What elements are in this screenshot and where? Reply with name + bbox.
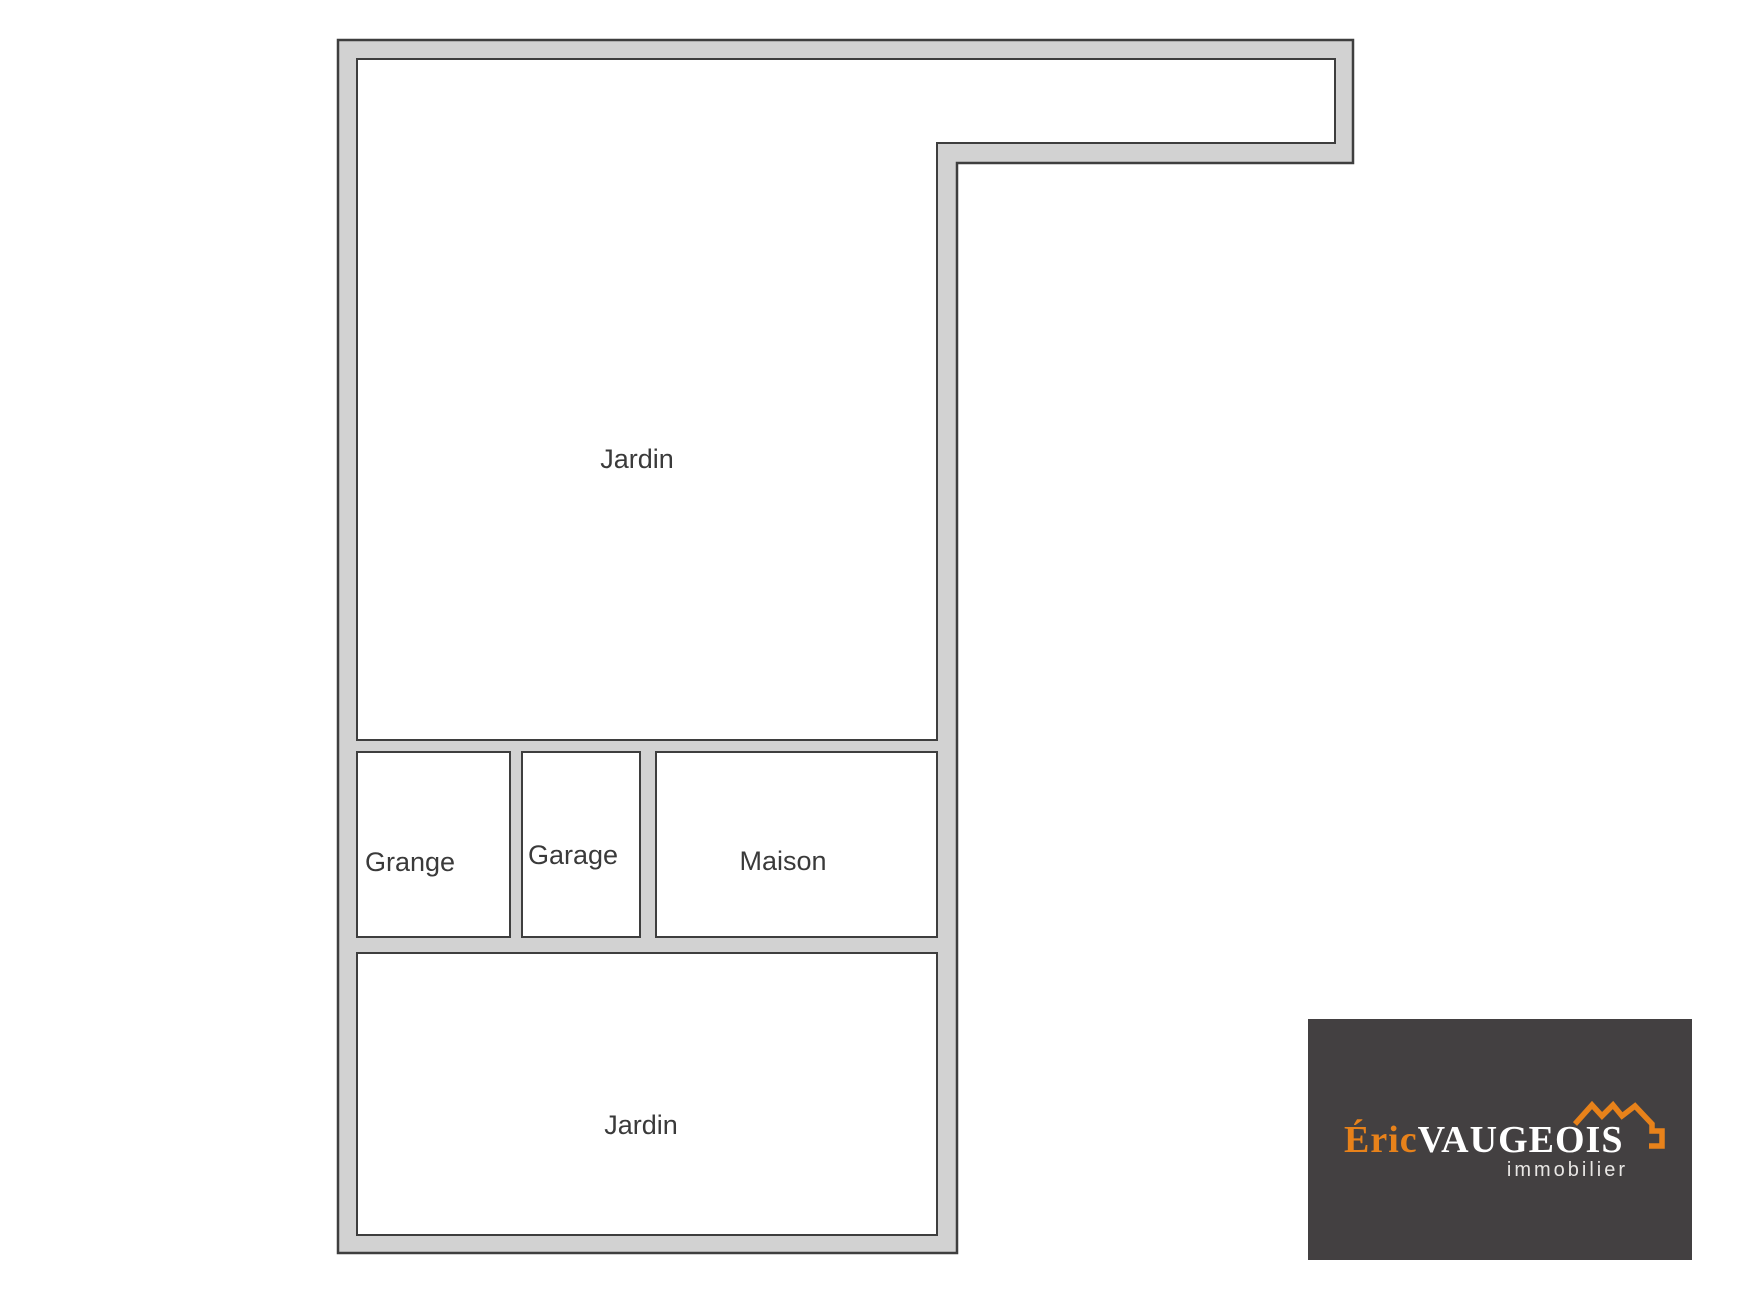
brand-last-name: VAUGEOIS: [1418, 1119, 1624, 1161]
grange-label: Grange: [365, 847, 455, 877]
page-canvas: Jardin Grange Garage Maison Jardin ÉricV…: [0, 0, 1743, 1307]
jardin-bottom-area: [357, 953, 937, 1235]
agency-logo: ÉricVAUGEOIS immobilier: [1308, 1019, 1692, 1260]
brand-first-name: Éric: [1344, 1119, 1418, 1161]
maison-label: Maison: [739, 846, 826, 876]
jardin-top-label: Jardin: [600, 444, 674, 474]
garage-label: Garage: [528, 840, 618, 870]
brand-tagline: immobilier: [1507, 1159, 1628, 1182]
jardin-bottom-label: Jardin: [604, 1110, 678, 1140]
grange-area: [357, 752, 510, 937]
maison-area: [656, 752, 937, 937]
brand-name: ÉricVAUGEOIS: [1344, 1118, 1623, 1164]
